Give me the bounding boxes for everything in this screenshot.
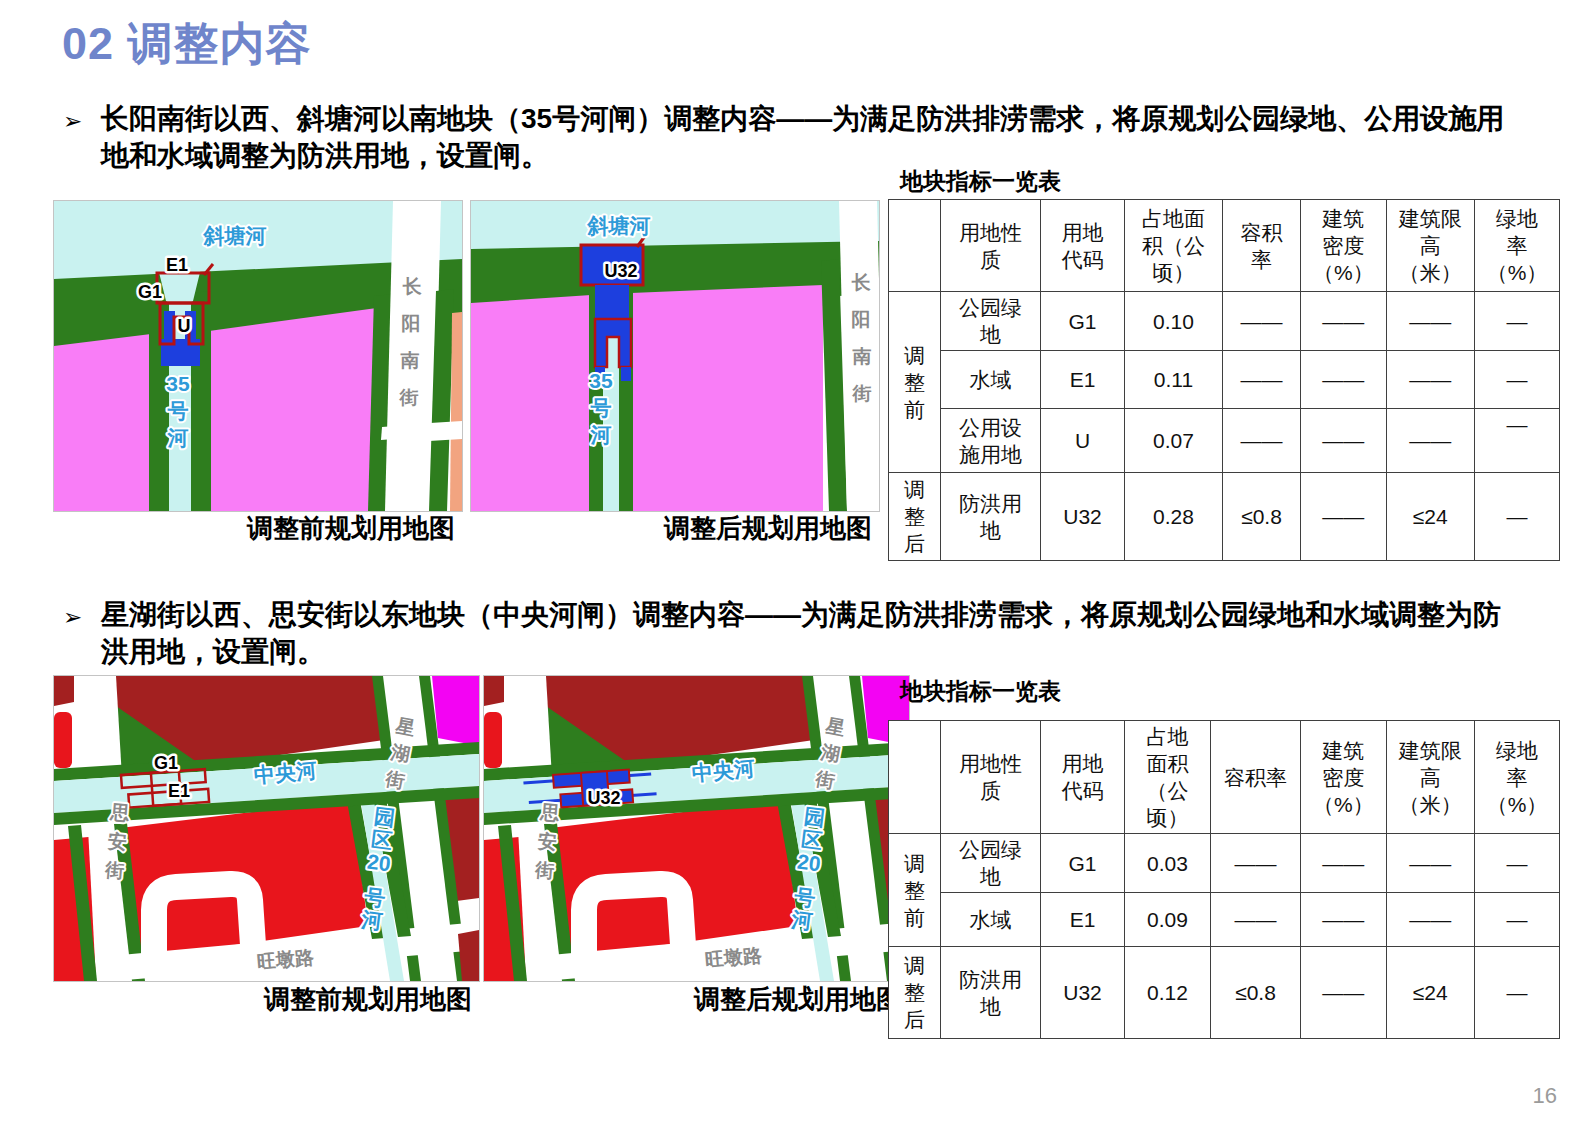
svg-text:河: 河 xyxy=(590,423,612,446)
svg-text:星: 星 xyxy=(823,715,847,739)
group-label-before: 调整前 xyxy=(889,834,941,947)
table-cell: — xyxy=(1474,409,1560,473)
table-cell: —— xyxy=(1223,409,1301,473)
table-cell: 建筑密度（%） xyxy=(1301,721,1387,834)
table-cell: 占地面积（公顷） xyxy=(1125,721,1211,834)
svg-text:安: 安 xyxy=(537,830,558,853)
table-cell: 容积率 xyxy=(1223,200,1301,292)
table-cell: 建筑限高（米） xyxy=(1386,200,1474,292)
zone-label-u32: U32 xyxy=(587,788,620,808)
caption-after-central: 调整后规划用地图 xyxy=(483,982,908,1017)
svg-text:街: 街 xyxy=(399,387,419,408)
pink-block-left xyxy=(54,334,151,511)
table-cell: —— xyxy=(1386,292,1474,351)
table-cell: 容积率 xyxy=(1211,721,1301,834)
table-cell: — xyxy=(1474,351,1560,409)
bullet-2-text: 星湖街以西、思安街以东地块（中央河闸）调整内容——为满足防洪排涝需求，将原规划公… xyxy=(101,596,1525,670)
table-cell: 0.07 xyxy=(1125,409,1223,473)
table-row: 调整后 防洪用地 U32 0.28 ≤0.8 —— ≤24 — xyxy=(889,473,1560,561)
svg-text:街: 街 xyxy=(813,768,837,792)
table-cell: —— xyxy=(1301,351,1387,409)
svg-text:河: 河 xyxy=(789,907,814,933)
svg-text:号: 号 xyxy=(167,399,189,422)
table-cell: — xyxy=(1474,473,1560,561)
table-cell: ≤0.8 xyxy=(1211,947,1301,1039)
svg-text:星: 星 xyxy=(393,715,417,739)
table-cell xyxy=(889,200,941,292)
table-cell: —— xyxy=(1301,834,1387,893)
table-cell: 绿地率（%） xyxy=(1474,721,1560,834)
table-cell: 建筑限高（米） xyxy=(1386,721,1474,834)
map-before-central: G1 E1 中央河 园 区 20 号 河 思 安 街 星 湖 街 旺墩路 xyxy=(53,675,480,982)
table-row: 调整前 公园绿地 G1 0.10 —— —— —— — xyxy=(889,292,1560,351)
svg-text:园: 园 xyxy=(803,804,827,829)
table-cell: —— xyxy=(1386,351,1474,409)
svg-text:街: 街 xyxy=(383,768,407,792)
table-cell: 公园绿地 xyxy=(941,292,1041,351)
map-after-35: U32 斜塘河 35 号 河 长 阳 南 街 xyxy=(470,200,880,512)
table-cell: ≤24 xyxy=(1386,473,1474,561)
table-row: 调整后 防洪用地 U32 0.12 ≤0.8 —— ≤24 — xyxy=(889,947,1560,1039)
table-cell: — xyxy=(1474,834,1560,893)
river-label-xietang: 斜塘河 xyxy=(203,224,267,247)
table-cell: 0.11 xyxy=(1125,351,1223,409)
spec-table-1: 用地性质 用地代码 占地面积（公顷） 容积率 建筑密度（%） 建筑限高（米） 绿… xyxy=(888,199,1560,561)
table-cell: —— xyxy=(1386,409,1474,473)
table-cell: G1 xyxy=(1041,292,1125,351)
table-cell: —— xyxy=(1301,292,1387,351)
table-cell: 0.09 xyxy=(1125,893,1211,947)
map-before-35: E1 G1 U 斜塘河 35 号 河 长 阳 南 街 xyxy=(53,200,463,512)
svg-text:园: 园 xyxy=(373,804,397,829)
table-cell: 0.10 xyxy=(1125,292,1223,351)
zone-label-e1: E1 xyxy=(168,781,190,801)
svg-text:河: 河 xyxy=(359,907,384,933)
zone-label-u32: U32 xyxy=(604,261,637,281)
caption-after-35: 调整后规划用地图 xyxy=(470,511,878,546)
table-cell: — xyxy=(1474,947,1560,1039)
spec-table-2: 用地性质 用地代码 占地面积（公顷） 容积率 建筑密度（%） 建筑限高（米） 绿… xyxy=(888,720,1560,1039)
pink-block-left xyxy=(471,295,591,511)
group-label-after: 调整后 xyxy=(889,473,941,561)
table-cell: 公用设施用地 xyxy=(941,409,1041,473)
group-label-before: 调整前 xyxy=(889,292,941,473)
table-row: 水域 E1 0.09 —— —— —— — xyxy=(889,893,1560,947)
table-row: 调整前 公园绿地 G1 0.03 —— —— —— — xyxy=(889,834,1560,893)
table-cell: 水域 xyxy=(941,351,1041,409)
caption-before-35: 调整前规划用地图 xyxy=(53,511,461,546)
table-2-title: 地块指标一览表 xyxy=(900,676,1061,707)
table-cell: — xyxy=(1474,893,1560,947)
table-cell: 建筑密度（%） xyxy=(1301,200,1387,292)
pink-block-center xyxy=(209,307,384,511)
table-cell: —— xyxy=(1386,834,1474,893)
svg-text:长: 长 xyxy=(403,276,423,297)
table-cell: 水域 xyxy=(941,893,1041,947)
table-cell: —— xyxy=(1301,409,1387,473)
zone-label-g1: G1 xyxy=(154,753,178,773)
table-cell: —— xyxy=(1301,473,1387,561)
table-cell: U32 xyxy=(1041,473,1125,561)
table-header-row: 用地性质 用地代码 占地面积（公顷） 容积率 建筑密度（%） 建筑限高（米） 绿… xyxy=(889,200,1560,292)
svg-text:20: 20 xyxy=(796,850,822,876)
river-label-35: 35 xyxy=(589,369,613,392)
svg-text:湖: 湖 xyxy=(388,741,412,765)
svg-text:阳: 阳 xyxy=(852,309,871,330)
table-cell: 用地性质 xyxy=(941,721,1041,834)
table-cell: ≤0.8 xyxy=(1223,473,1301,561)
svg-text:阳: 阳 xyxy=(402,313,421,334)
table-cell: U32 xyxy=(1041,947,1125,1039)
table-cell: —— xyxy=(1223,292,1301,351)
svg-text:南: 南 xyxy=(852,346,872,367)
table-header-row: 用地性质 用地代码 占地面积（公顷） 容积率 建筑密度（%） 建筑限高（米） 绿… xyxy=(889,721,1560,834)
bullet-1: ➢ 长阳南街以西、斜塘河以南地块（35号河闸）调整内容——为满足防洪排涝需求，将… xyxy=(63,100,1525,174)
zone-label-g1: G1 xyxy=(138,282,162,302)
table-cell: 占地面积（公顷） xyxy=(1125,200,1223,292)
group-label-after: 调整后 xyxy=(889,947,941,1039)
table-cell: ≤24 xyxy=(1386,947,1474,1039)
bullet-1-text: 长阳南街以西、斜塘河以南地块（35号河闸）调整内容——为满足防洪排涝需求，将原规… xyxy=(101,100,1525,174)
table-row: 水域 E1 0.11 —— —— —— — xyxy=(889,351,1560,409)
table-cell: —— xyxy=(1386,893,1474,947)
svg-text:街: 街 xyxy=(103,859,125,882)
svg-text:思: 思 xyxy=(539,801,562,824)
svg-text:南: 南 xyxy=(400,350,420,371)
table-cell: 绿地率（%） xyxy=(1474,200,1560,292)
table-cell: G1 xyxy=(1041,834,1125,893)
svg-text:号: 号 xyxy=(792,884,817,910)
table-cell: —— xyxy=(1223,351,1301,409)
table-cell: 0.03 xyxy=(1125,834,1211,893)
page-title: 02 调整内容 xyxy=(62,14,312,74)
river-label-35: 35 xyxy=(166,372,190,395)
table-cell: — xyxy=(1474,292,1560,351)
table-cell: E1 xyxy=(1041,351,1125,409)
svg-text:湖: 湖 xyxy=(818,741,842,765)
salmon-block xyxy=(450,312,462,511)
caption-before-central: 调整前规划用地图 xyxy=(53,982,478,1017)
svg-text:街: 街 xyxy=(533,859,555,882)
table-cell: 防洪用地 xyxy=(941,473,1041,561)
map-after-central: U32 中央河 园 区 20 号 河 思 安 街 星 湖 街 旺墩路 xyxy=(483,675,910,982)
table-cell: 0.12 xyxy=(1125,947,1211,1039)
pink-block-center xyxy=(631,285,823,511)
bullet-arrow-icon: ➢ xyxy=(63,100,101,140)
table-cell: —— xyxy=(1301,893,1387,947)
table-cell: 用地代码 xyxy=(1041,721,1125,834)
table-cell: E1 xyxy=(1041,893,1125,947)
table-cell: —— xyxy=(1301,947,1387,1039)
page-number: 16 xyxy=(1533,1083,1557,1109)
table-row: 公用设施用地 U 0.07 —— —— —— — xyxy=(889,409,1560,473)
bullet-arrow-icon: ➢ xyxy=(63,596,101,636)
svg-text:20: 20 xyxy=(366,850,392,876)
svg-text:街: 街 xyxy=(852,383,872,404)
table-cell: 防洪用地 xyxy=(941,947,1041,1039)
map-shapes xyxy=(471,201,880,511)
table-cell: 公园绿地 xyxy=(941,834,1041,893)
table-cell: U xyxy=(1041,409,1125,473)
svg-text:号: 号 xyxy=(362,884,387,910)
table-cell: 0.28 xyxy=(1125,473,1223,561)
table-cell xyxy=(889,721,941,834)
zone-label-u: U xyxy=(178,316,191,336)
table-cell: 用地代码 xyxy=(1041,200,1125,292)
svg-text:河: 河 xyxy=(167,426,189,449)
svg-text:思: 思 xyxy=(109,801,132,824)
bullet-2: ➢ 星湖街以西、思安街以东地块（中央河闸）调整内容——为满足防洪排涝需求，将原规… xyxy=(63,596,1525,670)
svg-text:安: 安 xyxy=(107,830,128,853)
svg-text:区: 区 xyxy=(800,827,824,852)
table-1-title: 地块指标一览表 xyxy=(900,166,1061,197)
river-label-xietang: 斜塘河 xyxy=(587,214,651,237)
svg-text:长: 长 xyxy=(852,272,872,293)
table-cell: —— xyxy=(1211,834,1301,893)
svg-text:号: 号 xyxy=(590,396,612,419)
svg-text:区: 区 xyxy=(370,827,394,852)
table-cell: —— xyxy=(1211,893,1301,947)
table-cell: 用地性质 xyxy=(941,200,1041,292)
magenta-block xyxy=(432,676,479,746)
zone-label-e1: E1 xyxy=(166,255,188,275)
